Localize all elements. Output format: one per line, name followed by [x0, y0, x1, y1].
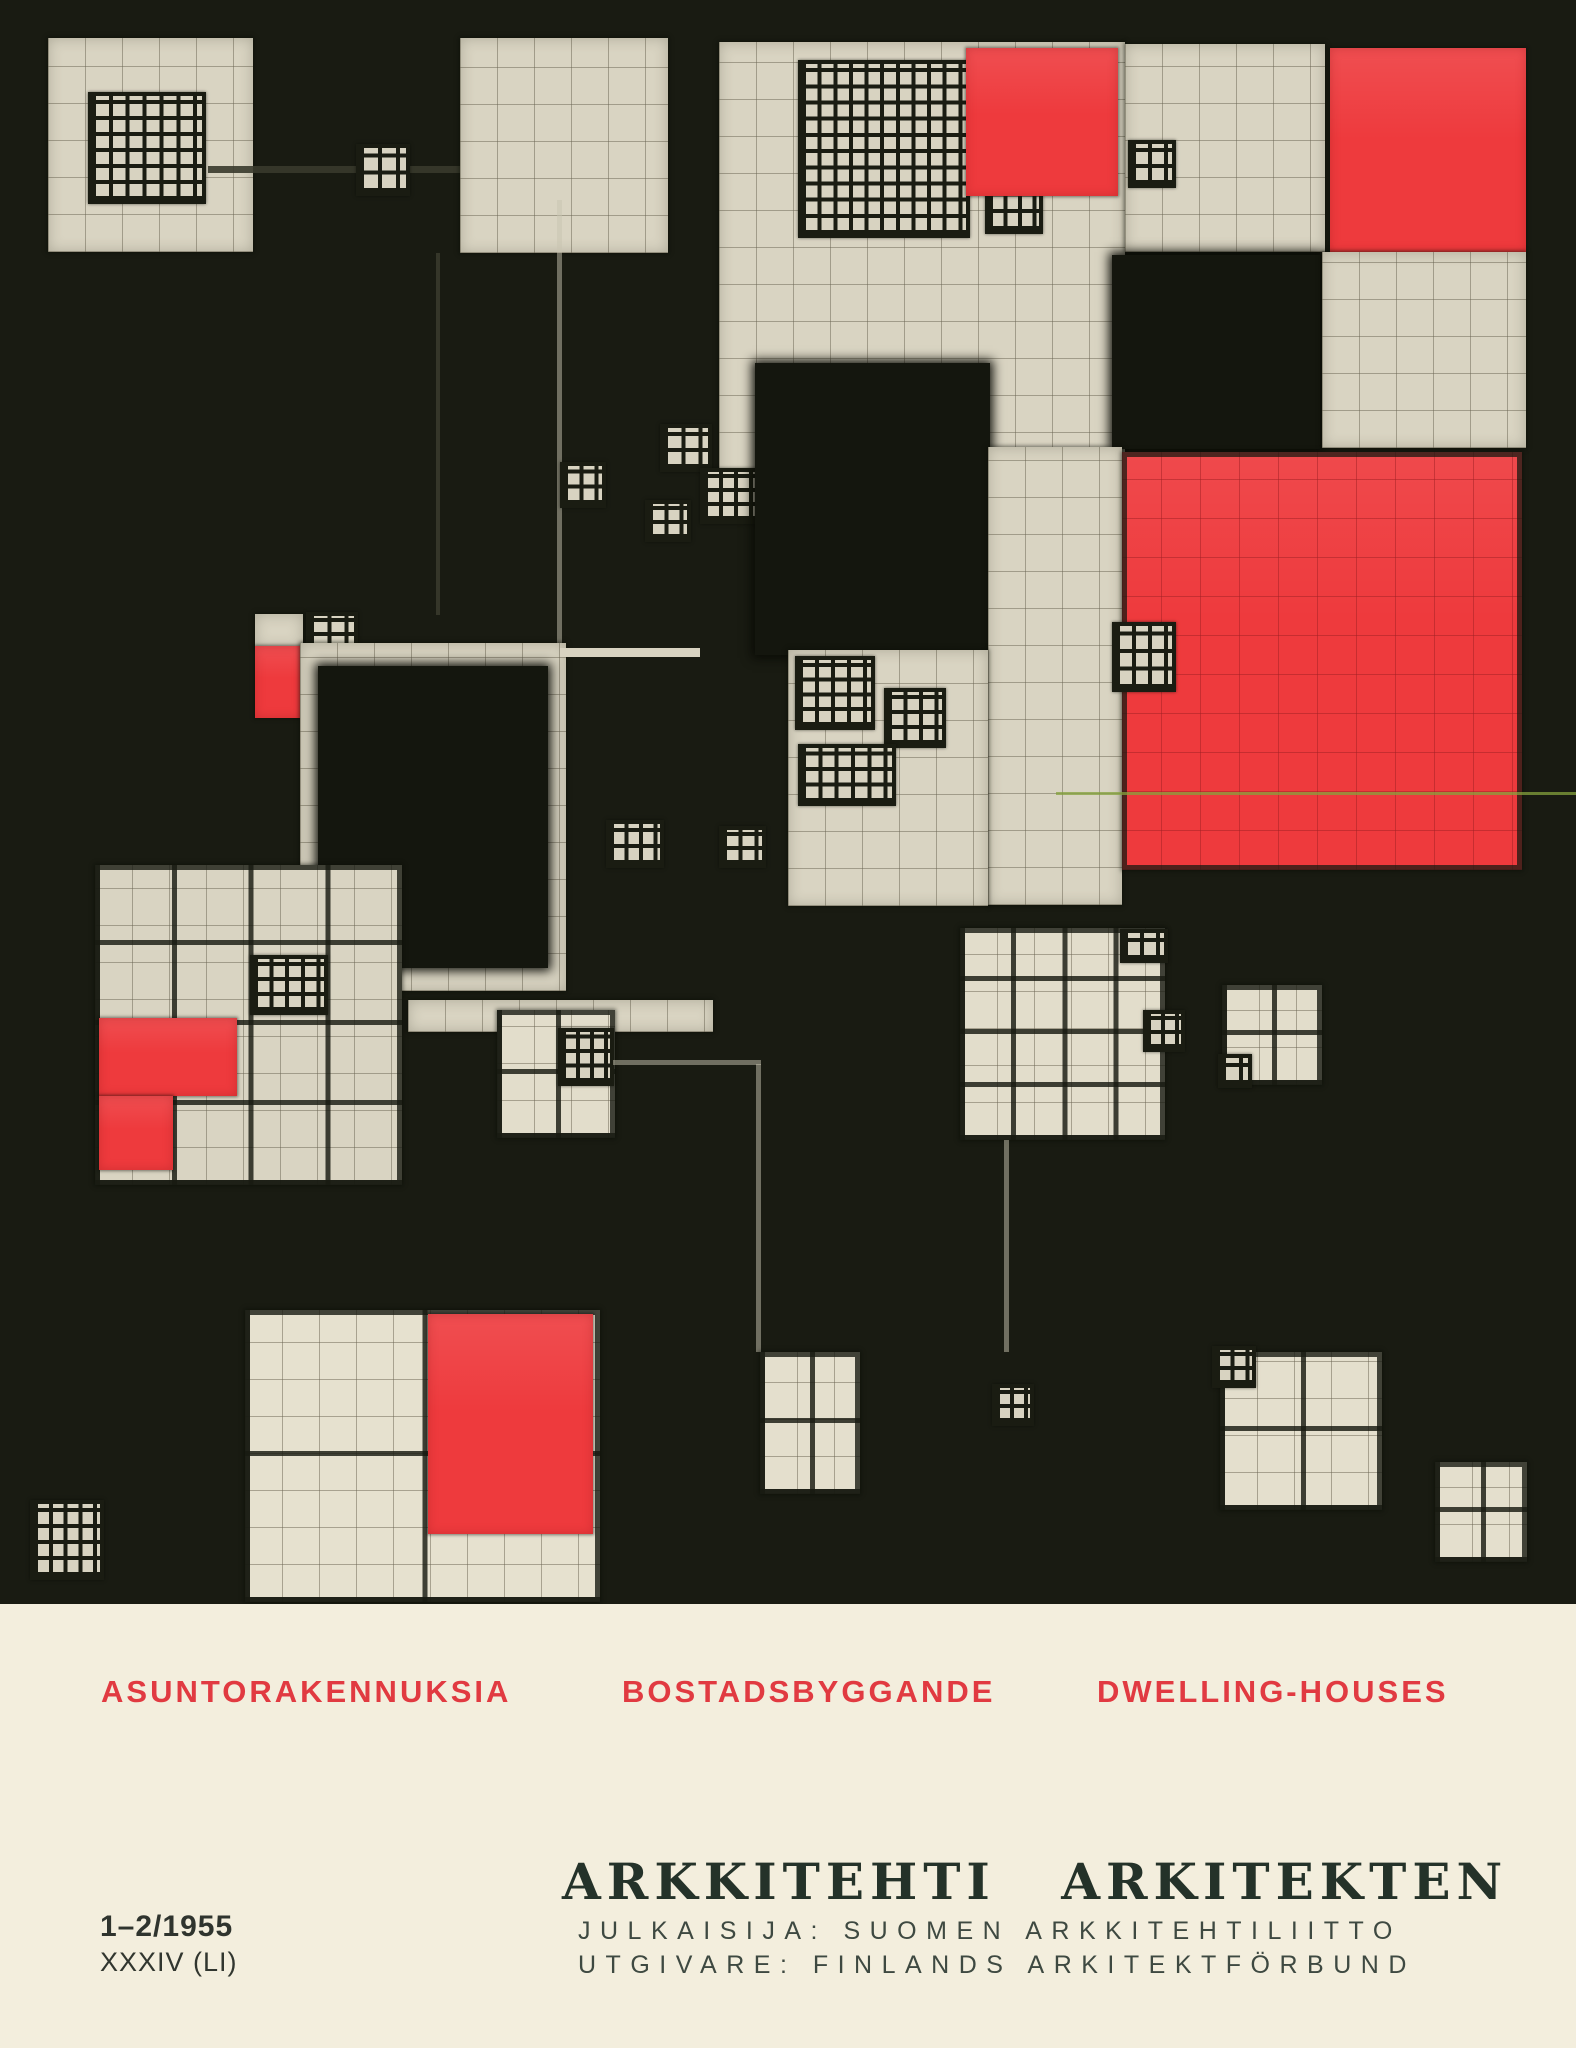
- center-doodle-c: [645, 500, 691, 542]
- mid-black-block: [755, 363, 990, 655]
- top-right-red-square: [1330, 48, 1526, 252]
- center-doodle-b: [700, 468, 760, 524]
- right-grid-square: [1322, 252, 1526, 448]
- top-left-doodle-grid: [88, 92, 206, 204]
- br-small-square: [1435, 1462, 1527, 1562]
- tagline-swedish: BOSTADSBYGGANDE: [622, 1674, 995, 1710]
- mid-doodle-a: [795, 656, 875, 730]
- publisher-line-finnish: JULKAISIJA: SUOMEN ARKKITEHTILIITTO: [578, 1917, 1478, 1946]
- big-red-square: [1122, 452, 1522, 870]
- rc-small-doodle: [1218, 1054, 1252, 1088]
- top-center-grid-square: [460, 38, 668, 253]
- cover-artwork: [0, 0, 1576, 1604]
- rc-doodle-side: [1143, 1010, 1185, 1052]
- print-artifact-line: [1056, 792, 1576, 795]
- center-frame-arm: [560, 648, 700, 657]
- br-side-doodle: [992, 1384, 1034, 1426]
- left-red-block-a: [99, 1018, 237, 1096]
- mid-link-line: [613, 1060, 761, 1065]
- center-thin-vline: [557, 200, 562, 648]
- tagline-finnish: ASUNTORAKENNUKSIA: [101, 1674, 511, 1710]
- mid-right-cream-col: [988, 447, 1122, 905]
- rc-doodle-top: [1120, 929, 1168, 963]
- top-right-doodle: [1128, 140, 1176, 188]
- small-cream-cell: [255, 614, 303, 648]
- top-doodle-a: [356, 144, 410, 196]
- red-edge-doodle: [1112, 622, 1176, 692]
- right-black-square: [1112, 255, 1320, 449]
- top-red-square: [966, 48, 1118, 196]
- volume-label: XXXIV (LI): [100, 1947, 238, 1978]
- left-square-doodle: [250, 955, 328, 1015]
- rc-thin-vline: [1004, 1140, 1009, 1352]
- bottom-thin-vline: [756, 1064, 761, 1352]
- mid-square-doodle: [558, 1028, 614, 1086]
- bottom-left-doodle: [30, 1500, 104, 1580]
- mid-doodle-c: [798, 744, 896, 806]
- magazine-title: ARKKITEHTI ARKITEKTEN: [562, 1852, 1462, 1911]
- top-mid-doodle-cluster: [798, 60, 970, 238]
- center-doodle-d: [560, 462, 606, 508]
- cover-footer: ASUNTORAKENNUKSIA BOSTADSBYGGANDE DWELLI…: [0, 1604, 1576, 2048]
- left-red-block-b: [99, 1096, 173, 1170]
- dark-doodle-a: [606, 820, 664, 868]
- dark-doodle-b: [719, 826, 766, 868]
- bottom-mid-grid-square: [760, 1352, 860, 1494]
- mid-doodle-b: [884, 688, 946, 748]
- left-thin-vline: [436, 253, 440, 615]
- top-connector-line: [208, 166, 463, 173]
- center-doodle-a: [660, 424, 712, 472]
- issue-number: 1–2/1955: [100, 1910, 233, 1944]
- bottom-red-cell: [428, 1314, 593, 1534]
- small-red-square: [255, 646, 302, 718]
- tagline-english: DWELLING-HOUSES: [1097, 1674, 1449, 1710]
- publisher-line-swedish: UTGIVARE: FINLANDS ARKITEKTFÖRBUND: [578, 1951, 1478, 1980]
- br-corner-doodle: [1212, 1346, 1256, 1388]
